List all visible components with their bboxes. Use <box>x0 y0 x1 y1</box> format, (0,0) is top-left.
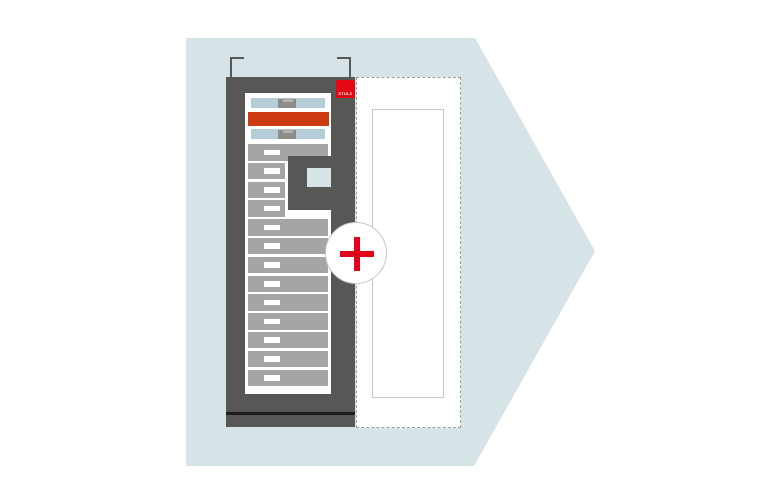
drawer-row <box>248 351 328 368</box>
drawer-row <box>248 370 328 387</box>
drawer-handle <box>264 356 280 362</box>
rack-base-line <box>226 412 355 415</box>
drawer-row <box>248 163 285 180</box>
unit-psu-tab <box>283 129 293 133</box>
stulz-logo-text: STULZ <box>339 92 353 96</box>
mounting-bracket-left <box>230 57 244 78</box>
drawer-row <box>248 294 328 311</box>
rack-unit-highlighted <box>248 112 329 126</box>
drawer-handle <box>264 319 280 325</box>
mounting-bracket-right <box>337 57 351 78</box>
drawer-handle <box>264 243 280 249</box>
drawer-row <box>248 332 328 349</box>
stulz-logo: STULZ <box>336 80 355 98</box>
drawer-row <box>248 238 328 255</box>
drawer-row <box>248 200 285 217</box>
drawer-handle <box>264 225 280 231</box>
drawer-handle <box>264 375 280 381</box>
drawer-handle <box>264 337 280 343</box>
drawer-handle <box>264 150 280 156</box>
rack-unit-top <box>251 98 325 108</box>
drawer-handle <box>264 281 280 287</box>
side-module-face <box>307 168 331 187</box>
rack-unit-middle <box>251 129 325 139</box>
drawer-handle <box>264 187 280 193</box>
unit-psu-tab <box>283 98 293 102</box>
drawer-row <box>248 219 328 236</box>
drawer-handle <box>264 300 280 306</box>
drawer-row <box>248 313 328 330</box>
plus-icon <box>354 237 360 271</box>
drawer-row <box>248 276 328 293</box>
drawer-row <box>248 182 285 199</box>
illustration-stage: STULZ <box>0 0 768 495</box>
drawer-handle <box>264 168 280 174</box>
drawer-row <box>248 257 328 274</box>
add-module-button[interactable] <box>325 222 387 284</box>
drawer-handle <box>264 262 280 268</box>
drawer-handle <box>264 206 280 212</box>
